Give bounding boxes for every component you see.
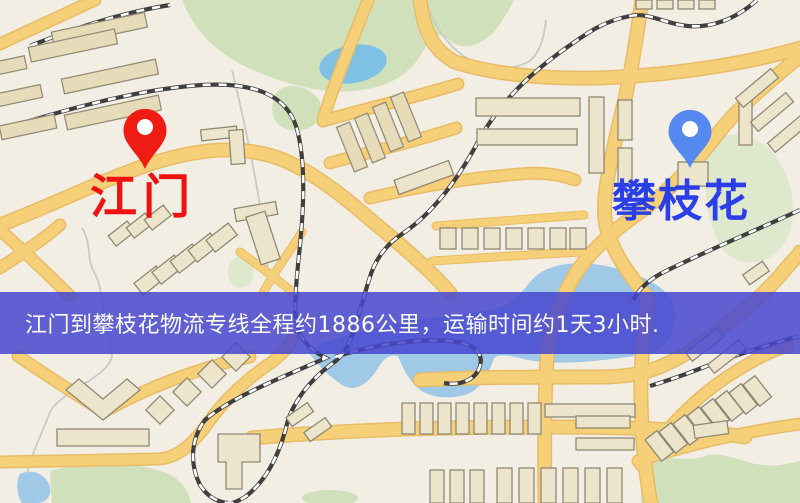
origin-city-label: 江门 (90, 174, 196, 221)
destination-marker-hole (682, 121, 698, 137)
map-canvas[interactable] (0, 0, 800, 503)
route-info-banner: 江门到攀枝花物流专线全程约1886公里，运输时间约1天3小时. (0, 292, 800, 354)
destination-city-label: 攀枝花 (612, 180, 750, 224)
route-info-text: 江门到攀枝花物流专线全程约1886公里，运输时间约1天3小时. (25, 307, 659, 339)
origin-marker-hole (137, 119, 153, 135)
map-screenshot: 江门 攀枝花 江门到攀枝花物流专线全程约1886公里，运输时间约1天3小时. (0, 0, 800, 503)
